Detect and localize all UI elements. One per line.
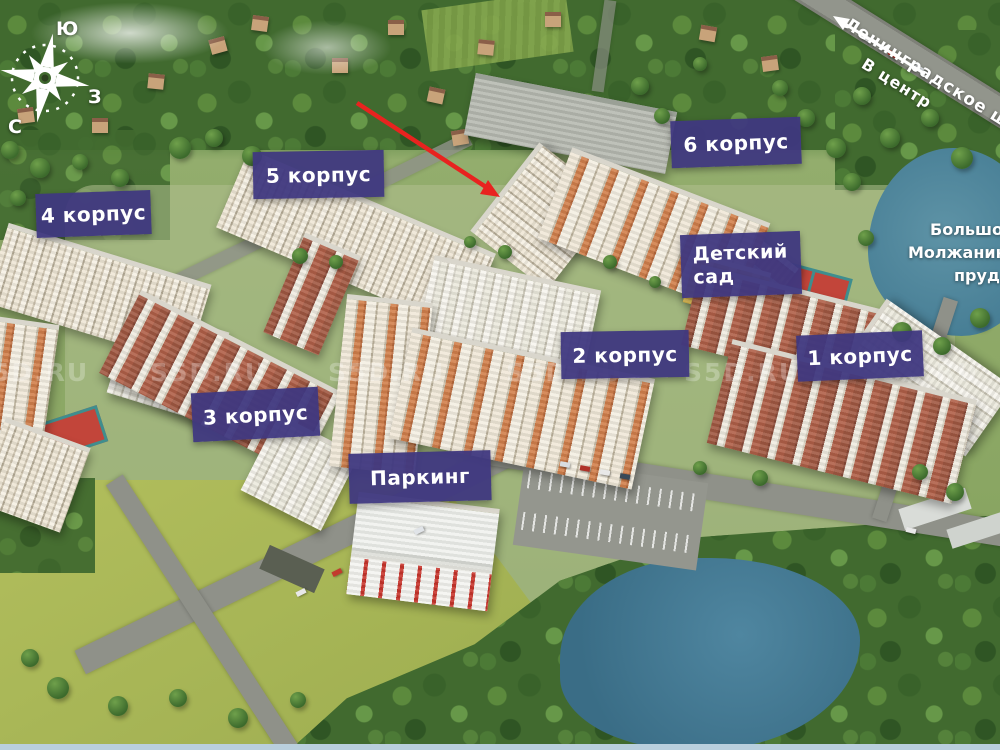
tree [47,677,69,699]
tree [693,57,707,71]
label-korpus-1[interactable]: 1 корпус [796,330,924,381]
label-text: 5 корпус [266,162,372,188]
pond-label-line: Большой [930,218,1000,241]
tree [970,308,990,328]
tree [933,337,951,355]
village-house [699,25,717,43]
compass-letter-north: С [8,116,22,138]
tree [111,169,129,187]
tree [169,137,191,159]
village-house [332,58,348,73]
watermark: S5D.RU [328,358,445,387]
tree [21,649,39,667]
shore-strip [0,744,1000,750]
label-korpus-5[interactable]: 5 корпус [253,150,385,199]
masterplan-scene: S5D.RU S5D.RU S5D.RU S5D.RU S5D.RU S5D.R… [0,0,1000,750]
village-house [427,87,446,105]
label-text: Детский сад [692,240,780,289]
village-house [147,73,164,90]
label-text: 1 корпус [807,342,913,371]
tree [1,141,19,159]
watermark: S5D.RU [150,358,267,387]
tree [631,77,649,95]
label-text: 2 корпус [572,342,678,368]
tree [843,173,861,191]
label-text: 4 корпус [40,200,146,228]
tree [30,158,50,178]
tree [912,464,928,480]
label-detskiy-sad[interactable]: Детский сад [680,231,802,298]
tree [853,87,871,105]
tree [329,255,343,269]
village-house [92,118,108,133]
pond-label-line: Молжаниновский [908,241,1000,264]
watermark: S5D.RU [0,358,89,387]
tree [693,461,707,475]
label-text: 3 корпус [202,400,308,429]
building-parking-garage [346,492,499,612]
tree [858,230,874,246]
village-house [761,55,779,72]
tree [108,696,128,716]
tree [292,248,308,264]
pond-label: Большой Молжаниновский пруд [908,218,1000,287]
tree [72,154,88,170]
tree [169,689,187,707]
village-house [388,20,404,35]
tree [826,138,846,158]
tree [752,470,768,486]
tree [951,147,973,169]
tree [10,190,26,206]
label-text: 6 корпус [683,129,789,157]
tree [654,108,670,124]
tree [205,129,223,147]
label-text: Паркинг [370,464,471,491]
label-korpus-2[interactable]: 2 корпус [561,330,690,379]
compass-letter-south: Ю [56,18,78,40]
tree [880,128,900,148]
tree [772,80,788,96]
label-korpus-3[interactable]: 3 корпус [191,387,320,443]
village-house [251,15,269,32]
compass-letter-west: З [88,86,102,108]
tree [464,236,476,248]
label-korpus-4[interactable]: 4 корпус [35,190,151,238]
pond-label-line: пруд [954,264,1000,287]
village-house [477,39,494,56]
parking-stalls-row [521,512,694,554]
tree [498,245,512,259]
watermark: S5D.RU [684,358,801,387]
tree [946,483,964,501]
tree [649,276,661,288]
label-parking[interactable]: Паркинг [348,450,491,504]
tree [290,692,306,708]
village-house [545,12,561,27]
tree [228,708,248,728]
tree [603,255,617,269]
label-korpus-6[interactable]: 6 корпус [670,117,802,169]
